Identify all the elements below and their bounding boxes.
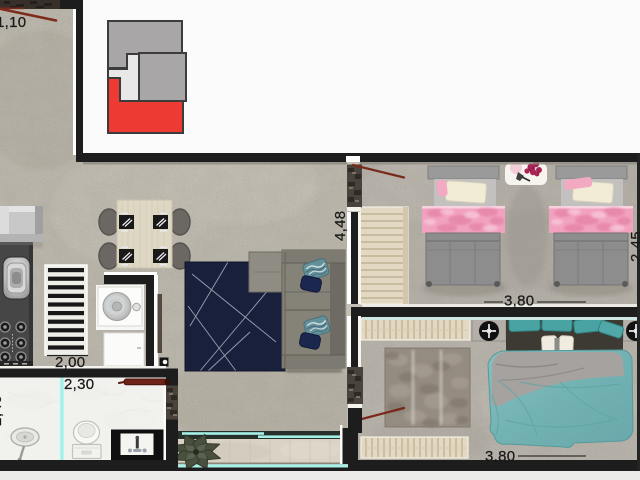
svg-text:3,80: 3,80: [485, 448, 515, 465]
svg-text:2,45: 2,45: [628, 231, 640, 262]
svg-text:2,30: 2,30: [64, 376, 94, 393]
svg-text:4,48: 4,48: [332, 211, 349, 241]
svg-text:2,00: 2,00: [55, 354, 85, 371]
svg-text:2,40: 2,40: [0, 395, 5, 426]
svg-text:3,80: 3,80: [504, 293, 534, 310]
svg-text:1,10: 1,10: [0, 14, 26, 31]
